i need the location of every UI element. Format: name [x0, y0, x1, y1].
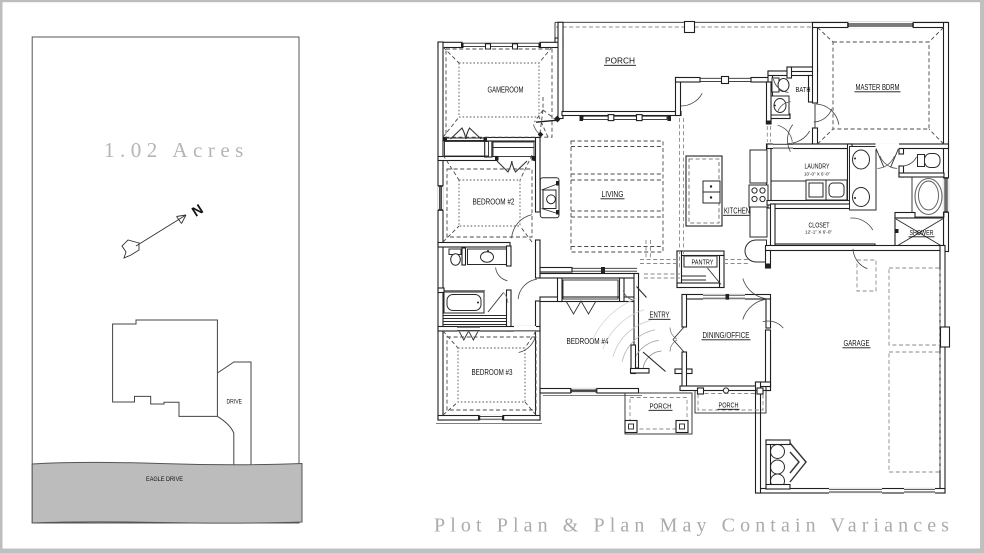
svg-text:PORCH: PORCH [650, 402, 672, 411]
svg-text:BEDROOM #3: BEDROOM #3 [472, 368, 513, 377]
svg-text:SHOWER: SHOWER [910, 230, 934, 237]
svg-text:GAMEROOM: GAMEROOM [488, 86, 524, 95]
svg-text:Plot Plan & Plan May Contain V: Plot Plan & Plan May Contain Variances [434, 515, 954, 537]
svg-text:ENTRY: ENTRY [650, 311, 670, 320]
svg-text:EAGLE DRIVE: EAGLE DRIVE [146, 476, 183, 483]
svg-text:MASTER BDRM: MASTER BDRM [856, 83, 900, 92]
svg-text:BEDROOM #4: BEDROOM #4 [567, 337, 609, 346]
svg-text:LAUNDRY: LAUNDRY [805, 164, 830, 171]
svg-text:PORCH: PORCH [605, 57, 635, 66]
svg-text:GARAGE: GARAGE [844, 339, 870, 348]
svg-text:PANTRY: PANTRY [692, 260, 714, 267]
svg-text:10’-0” X 6’-0”: 10’-0” X 6’-0” [804, 172, 830, 177]
svg-text:12’-1” X 6’-0”: 12’-1” X 6’-0” [805, 230, 832, 235]
svg-text:BEDROOM #2: BEDROOM #2 [473, 198, 515, 207]
svg-text:DRIVE: DRIVE [227, 399, 243, 406]
svg-text:DINING/OFFICE: DINING/OFFICE [703, 331, 750, 340]
svg-text:BATH: BATH [796, 87, 811, 94]
svg-text:KITCHEN: KITCHEN [724, 207, 750, 216]
svg-text:PORCH: PORCH [719, 401, 739, 410]
svg-text:CLOSET: CLOSET [809, 223, 831, 230]
svg-text:1.02 Acres: 1.02 Acres [104, 138, 249, 162]
svg-text:LIVING: LIVING [602, 190, 624, 199]
